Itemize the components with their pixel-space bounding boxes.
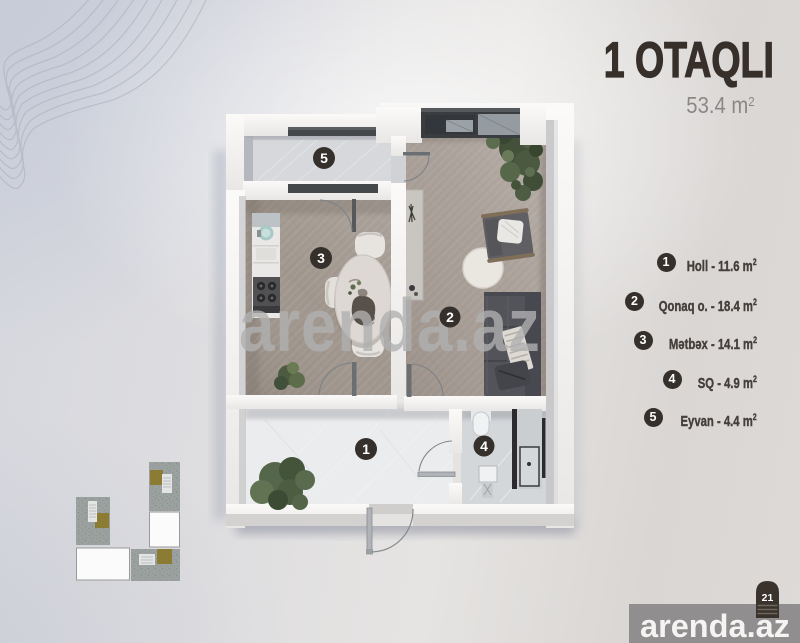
svg-text:4: 4 bbox=[480, 438, 488, 454]
svg-text:5: 5 bbox=[320, 150, 328, 166]
svg-text:2: 2 bbox=[446, 309, 454, 325]
svg-text:1: 1 bbox=[362, 441, 370, 457]
svg-text:3: 3 bbox=[317, 250, 325, 266]
